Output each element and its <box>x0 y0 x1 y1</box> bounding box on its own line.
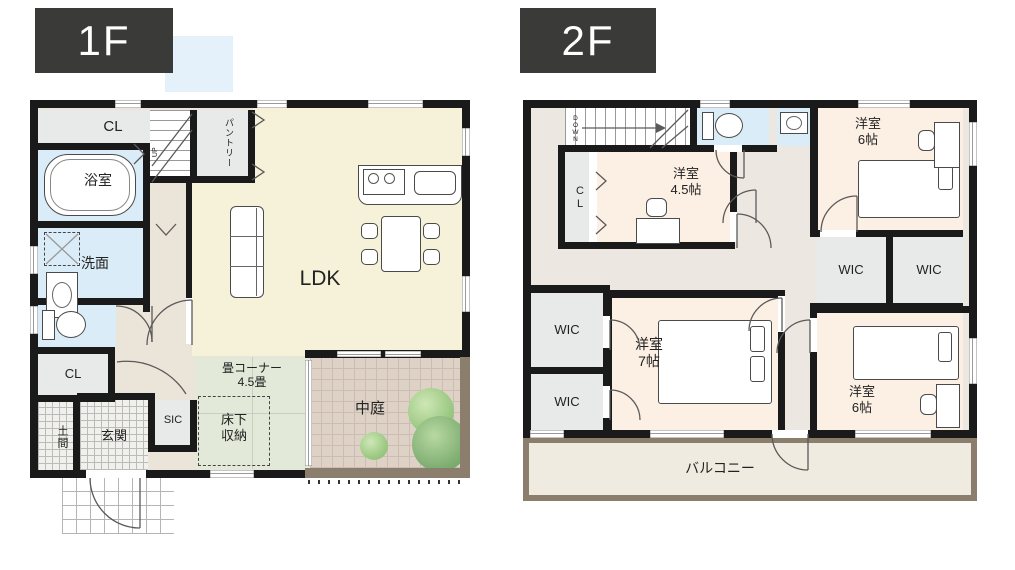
sofa-cushion-line <box>230 236 264 237</box>
label-bedroom6-top-line1: 洋室 <box>838 116 898 132</box>
desk <box>936 384 960 428</box>
label-sic: SIC <box>156 414 190 427</box>
sofa <box>230 206 264 298</box>
wall-segment <box>38 143 150 150</box>
chair <box>646 198 667 217</box>
wall-segment <box>190 110 197 183</box>
window <box>368 100 423 108</box>
pillow <box>938 166 953 190</box>
stairs-2f <box>565 108 690 150</box>
closet-door-strip <box>589 152 597 242</box>
label-ldk: LDK <box>288 266 352 291</box>
label-stairs-up: UP <box>152 142 160 162</box>
wall-segment <box>186 183 192 312</box>
label-tatami: 畳コーナー 4.5畳 <box>200 361 304 390</box>
label-tatami-line1: 畳コーナー <box>200 361 304 375</box>
label-bath: 浴室 <box>58 172 138 189</box>
wall-segment <box>38 347 115 354</box>
label-bedroom7-line2: 7帖 <box>614 353 684 370</box>
chair <box>920 394 937 415</box>
door-gap <box>820 230 856 237</box>
courtyard-edge <box>305 468 470 478</box>
wall-segment <box>730 152 737 214</box>
chair <box>361 249 378 265</box>
chair <box>918 130 935 151</box>
floor-label-2f: 2F <box>520 8 656 73</box>
label-wic-2: WIC <box>904 262 954 278</box>
toilet-tank-icon <box>42 310 55 340</box>
chair <box>423 249 440 265</box>
door-gap <box>714 145 742 152</box>
label-wic-1: WIC <box>826 262 876 278</box>
label-underfloor-line2: 収納 <box>204 428 264 444</box>
wall-segment <box>77 393 155 400</box>
toilet-tank-icon <box>702 112 714 140</box>
label-closet-top: CL <box>63 118 163 136</box>
pillow <box>750 326 765 352</box>
desk <box>934 122 960 168</box>
label-wic-3: WIC <box>538 322 596 338</box>
label-closet-small: CL <box>48 366 98 382</box>
window <box>30 306 38 334</box>
pillow <box>750 356 765 382</box>
label-wic-4: WIC <box>538 394 596 410</box>
door-gap <box>603 316 610 348</box>
pillow <box>938 332 952 362</box>
fence-ticks <box>308 480 462 484</box>
window <box>257 100 287 108</box>
label-doma: 土間 <box>46 408 68 466</box>
sink-bowl <box>52 282 72 308</box>
window <box>650 430 724 438</box>
floor-label-1f-text: 1F <box>77 17 130 65</box>
window <box>385 351 421 357</box>
kitchen-sink-icon <box>414 171 456 195</box>
label-courtyard: 中庭 <box>340 400 400 418</box>
label-closet-2f: CL <box>568 176 586 220</box>
wall-segment <box>248 110 255 183</box>
tree <box>360 432 388 460</box>
label-bedroom6-bottom: 洋室 6帖 <box>830 384 894 415</box>
chair <box>361 223 378 239</box>
door-gap <box>810 318 817 352</box>
wall-segment <box>38 221 143 228</box>
wall-segment <box>143 143 150 312</box>
entrance-porch <box>62 478 174 534</box>
wall-segment <box>810 108 818 237</box>
sofa-back-line <box>256 208 257 296</box>
window <box>858 100 910 108</box>
toilet-bowl-icon <box>56 311 86 338</box>
window <box>210 470 254 478</box>
balcony-door-gap <box>772 430 808 438</box>
door-gap <box>603 386 610 418</box>
window <box>530 430 564 438</box>
label-bedroom6-bottom-line2: 6帖 <box>830 400 894 416</box>
dining-table <box>381 216 421 272</box>
toilet-bowl-icon <box>715 113 743 138</box>
door-gap <box>778 296 785 332</box>
label-tatami-line2: 4.5畳 <box>200 375 304 389</box>
wall-segment <box>305 350 462 358</box>
courtyard-edge <box>460 357 470 478</box>
wall-segment <box>558 152 565 249</box>
window <box>462 276 470 312</box>
accent-square-1f <box>165 36 233 92</box>
floor-plan-stage: 1F <box>0 0 1015 570</box>
label-pantry: パントリー <box>210 113 234 173</box>
chair <box>423 223 440 239</box>
label-bedroom6-bottom-line1: 洋室 <box>830 384 894 400</box>
label-bedroom6-top-line2: 6帖 <box>838 132 898 148</box>
wall-segment <box>148 400 155 450</box>
sliding-window <box>305 360 312 466</box>
entrance-door-gap <box>86 470 146 478</box>
wall-segment <box>523 100 531 438</box>
label-washroom: 洗面 <box>55 255 135 272</box>
wall-segment <box>810 306 969 313</box>
window <box>337 351 381 357</box>
floor-label-2f-text: 2F <box>561 17 614 65</box>
window <box>115 100 141 108</box>
desk <box>636 218 680 244</box>
wall-segment <box>148 445 197 452</box>
label-bedroom45: 洋室 4.5帖 <box>648 166 724 197</box>
window <box>969 338 977 384</box>
wall-segment <box>531 367 603 374</box>
wall-segment <box>30 100 38 478</box>
burner <box>384 173 395 184</box>
window <box>462 128 470 156</box>
label-bedroom7-line1: 洋室 <box>614 336 684 353</box>
wall-segment <box>73 400 80 470</box>
label-underfloor: 床下 収納 <box>204 412 264 443</box>
wall-segment <box>190 400 197 450</box>
label-balcony: バルコニー <box>660 460 780 477</box>
window <box>855 430 931 438</box>
door-gap <box>730 212 737 242</box>
wall-segment <box>605 290 785 298</box>
label-bedroom7: 洋室 7帖 <box>614 336 684 370</box>
sofa-cushion-line <box>230 266 264 267</box>
wall-segment <box>531 285 610 293</box>
wall-segment <box>886 237 893 303</box>
label-stairs-down: DOWN <box>565 110 579 148</box>
window <box>700 100 730 108</box>
burner <box>368 173 379 184</box>
wall-segment <box>150 176 255 183</box>
window <box>30 246 38 274</box>
door-gap <box>186 298 192 344</box>
basin-bowl <box>786 116 802 130</box>
label-genkan: 玄関 <box>84 428 144 444</box>
label-bedroom45-line1: 洋室 <box>648 166 724 182</box>
floor-label-1f: 1F <box>35 8 173 73</box>
label-bedroom6-top: 洋室 6帖 <box>838 116 898 147</box>
label-underfloor-line1: 床下 <box>204 412 264 428</box>
label-bedroom45-line2: 4.5帖 <box>648 182 724 198</box>
window <box>969 122 977 166</box>
